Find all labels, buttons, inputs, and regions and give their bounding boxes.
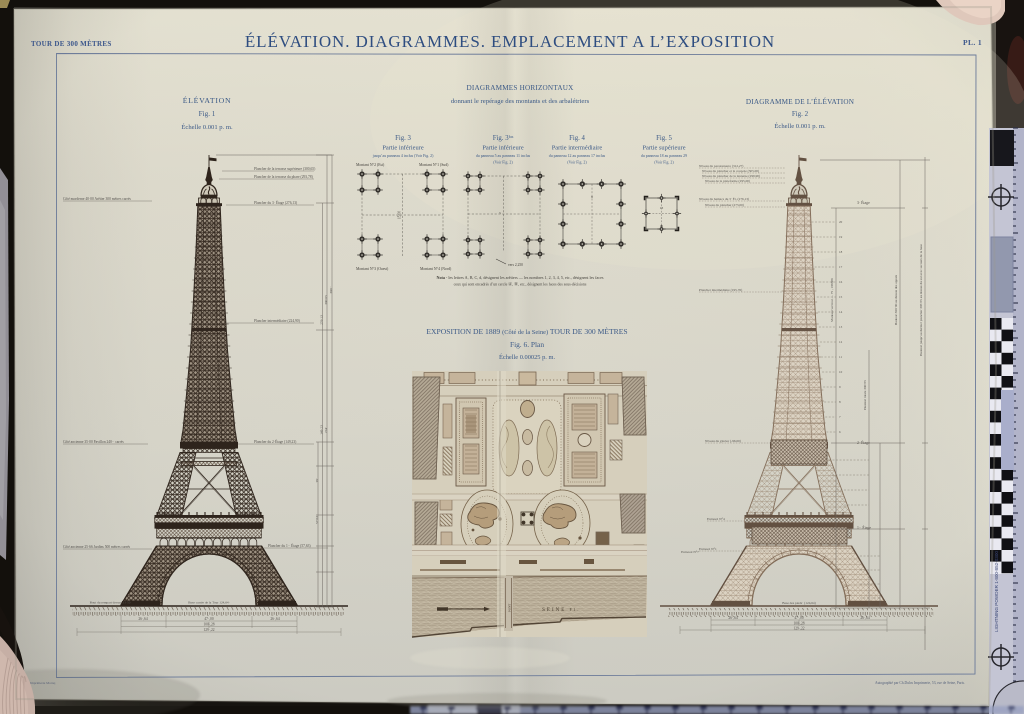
svg-text:Échelle 0.001 p. m.: Échelle 0.001 p. m. bbox=[774, 122, 826, 130]
svg-text:17: 17 bbox=[839, 265, 843, 269]
svg-text:DIAGRAMME DE L’ÉLÉVATION: DIAGRAMME DE L’ÉLÉVATION bbox=[746, 96, 855, 106]
svg-text:Côté ancienne 25·66 Jardins: Côté ancienne 25·66 Jardins 500 mètres c… bbox=[63, 545, 131, 549]
svg-text:8: 8 bbox=[591, 195, 593, 199]
svg-text:149·23: 149·23 bbox=[320, 425, 324, 435]
svg-text:Partie inférieure: Partie inférieure bbox=[482, 145, 524, 152]
svg-text:13: 13 bbox=[660, 206, 664, 210]
svg-text:224·: 224· bbox=[324, 427, 328, 433]
svg-text:2: 2 bbox=[498, 212, 502, 214]
svg-text:12: 12 bbox=[660, 224, 664, 228]
svg-text:20: 20 bbox=[839, 220, 843, 224]
svg-text:DIAGRAMMES HORIZONTAUX: DIAGRAMMES HORIZONTAUX bbox=[466, 84, 574, 92]
svg-text:(Voir Fig. 2): (Voir Fig. 2) bbox=[567, 161, 587, 165]
svg-text:Entresol N°1: Entresol N°1 bbox=[699, 547, 717, 551]
svg-text:11: 11 bbox=[839, 355, 842, 359]
svg-text:300·65: 300·65 bbox=[324, 295, 328, 305]
svg-text:13: 13 bbox=[839, 325, 843, 329]
svg-text:Côté morderne 40·00 Arêtier: Côté morderne 40·00 Arêtier 300 mètres c… bbox=[63, 197, 131, 201]
svg-text:Fig. 5: Fig. 5 bbox=[656, 135, 672, 142]
svg-text:Hauteur totale 300·65: Hauteur totale 300·65 bbox=[863, 380, 867, 410]
svg-text:Montant N°4 (Nord): Montant N°4 (Nord) bbox=[420, 267, 452, 271]
svg-text:Hauteur jusqu’au dernier planc: Hauteur jusqu’au dernier plancher 305·65… bbox=[919, 244, 923, 356]
svg-text:(Voir Fig. 2): (Voir Fig. 2) bbox=[493, 161, 513, 165]
svg-text:Entresol N°7: Entresol N°7 bbox=[681, 550, 699, 554]
svg-text:Montant N°1 (Sud): Montant N°1 (Sud) bbox=[419, 163, 449, 167]
svg-text:18: 18 bbox=[839, 250, 843, 254]
svg-text:57·63: 57·63 bbox=[315, 516, 319, 524]
svg-text:Fig. 6. Plan: Fig. 6. Plan bbox=[510, 340, 544, 349]
svg-text:Entresol N°4: Entresol N°4 bbox=[707, 517, 725, 521]
svg-text:Partie supérieure: Partie supérieure bbox=[642, 145, 685, 152]
svg-text:Échelle 0.001 p. m.: Échelle 0.001 p. m. bbox=[181, 123, 233, 131]
svg-text:donnant le repérage des montan: donnant le repérage des montants et des … bbox=[451, 98, 590, 105]
svg-text:2· Étage: 2· Étage bbox=[857, 440, 870, 445]
svg-text:Bout du rempart devant 33·50: Bout du rempart devant 33·50 bbox=[90, 601, 131, 605]
svg-text:Montant N°3 (Ouest): Montant N°3 (Ouest) bbox=[356, 267, 389, 271]
svg-text:ÉLÉVATION. DIAGRAMMES. EMPLACE: ÉLÉVATION. DIAGRAMMES. EMPLACEMENT A L’E… bbox=[245, 32, 775, 51]
svg-text:Fig. 4: Fig. 4 bbox=[569, 135, 585, 142]
svg-text:19: 19 bbox=[839, 235, 843, 239]
svg-text:TOUR DE 300 MÈTRES: TOUR DE 300 MÈTRES bbox=[31, 40, 112, 48]
svg-text:Fig. 3: Fig. 3 bbox=[395, 135, 411, 142]
svg-text:jusqu’au panneau 4 inclus (Voi: jusqu’au panneau 4 inclus (Voir Fig. 2) bbox=[372, 154, 434, 158]
svg-text:16: 16 bbox=[839, 280, 843, 284]
svg-text:Montant N°2 (Est): Montant N°2 (Est) bbox=[356, 163, 385, 167]
svg-text:Échelle 0.00025 p. m.: Échelle 0.00025 p. m. bbox=[499, 353, 555, 361]
svg-text:300··: 300·· bbox=[329, 286, 333, 293]
svg-text:15: 15 bbox=[839, 295, 843, 299]
svg-text:Partie intermédiaire: Partie intermédiaire bbox=[552, 145, 603, 152]
svg-text:Hauteur 300·00 au dessus des a: Hauteur 300·00 au dessus des appuis bbox=[894, 274, 898, 325]
svg-text:du panneau 5 au panneau 11 inc: du panneau 5 au panneau 11 inclus bbox=[476, 154, 531, 158]
svg-text:ÉLÉVATION: ÉLÉVATION bbox=[183, 95, 232, 105]
svg-text:12: 12 bbox=[839, 340, 843, 344]
svg-text:Partie inférieure: Partie inférieure bbox=[382, 145, 424, 152]
svg-text:du panneau 18 au panneau 29: du panneau 18 au panneau 29 bbox=[641, 154, 687, 158]
svg-text:Côté ancienne 35·00 Pavillon: Côté ancienne 35·00 Pavillon 240·· carré… bbox=[63, 440, 124, 444]
svg-text:Fig. 2: Fig. 2 bbox=[792, 110, 809, 118]
svg-text:14: 14 bbox=[839, 310, 843, 314]
svg-text:3· Étage: 3· Étage bbox=[857, 200, 870, 205]
svg-text:(Voir Fig. 2): (Voir Fig. 2) bbox=[654, 161, 674, 165]
svg-text:276·13: 276·13 bbox=[320, 315, 324, 325]
svg-text:PL. 1: PL. 1 bbox=[963, 38, 982, 47]
svg-text:LIGHTNING POWDER 1-800-852-030: LIGHTNING POWDER 1-800-852-0300 bbox=[994, 551, 999, 632]
svg-text:10: 10 bbox=[839, 370, 843, 374]
svg-text:95·: 95· bbox=[315, 478, 319, 483]
svg-text:Fig. 3ᵇᶦˢ: Fig. 3ᵇᶦˢ bbox=[493, 135, 514, 142]
svg-text:du panneau 12 au panneau 17 in: du panneau 12 au panneau 17 inclus bbox=[549, 154, 606, 158]
svg-text:Fig. 1: Fig. 1 bbox=[199, 110, 216, 118]
svg-text:PONT: PONT bbox=[508, 604, 512, 612]
